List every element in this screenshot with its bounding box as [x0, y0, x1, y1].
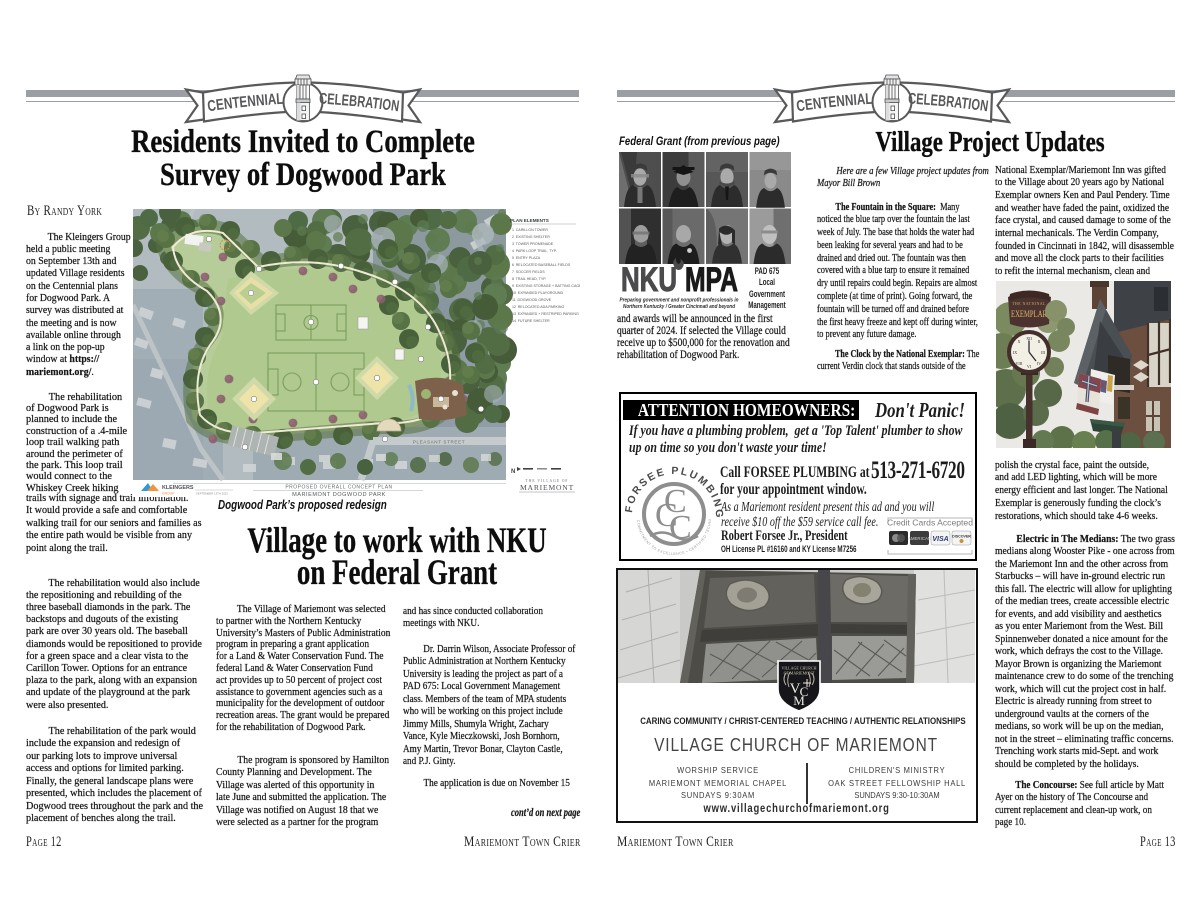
- svg-text:1 CARILLON TOWER: 1 CARILLON TOWER: [512, 228, 548, 232]
- svg-text:VI: VI: [1027, 364, 1032, 369]
- svg-text:IV: IV: [1037, 361, 1041, 366]
- svg-text:PLEASANT STREET: PLEASANT STREET: [413, 440, 465, 445]
- svg-text:13 EXPANDED + RESTRIPED PARKI: 13 EXPANDED + RESTRIPED PARKING LOT: [512, 312, 580, 316]
- svg-text:Northern Kentucky / Greater Ci: Northern Kentucky / Greater Cincinnati a…: [623, 304, 736, 310]
- svg-text:11 DOGWOOD GROVE: 11 DOGWOOD GROVE: [512, 298, 552, 302]
- svg-text:AMERICAN: AMERICAN: [908, 536, 931, 541]
- svg-text:MPA: MPA: [685, 261, 738, 299]
- svg-text:9 EXISTING STORAGE + BATTING: 9 EXISTING STORAGE + BATTING CAGES: [512, 284, 580, 288]
- svg-text:SEPTEMBER 13TH 2023: SEPTEMBER 13TH 2023: [196, 492, 228, 496]
- svg-text:Credit Cards Accepted: Credit Cards Accepted: [887, 518, 973, 528]
- svg-text:7 SOCCER FIELDS: 7 SOCCER FIELDS: [512, 270, 545, 274]
- svg-text:III: III: [1041, 350, 1046, 355]
- svg-text:NKU: NKU: [621, 261, 677, 299]
- svg-text:XII: XII: [1026, 336, 1032, 341]
- svg-text:M: M: [793, 693, 805, 708]
- svg-text:IX: IX: [1013, 350, 1017, 355]
- svg-text:5 ENTRY PLAZA: 5 ENTRY PLAZA: [512, 256, 541, 260]
- svg-text:DISCOVER: DISCOVER: [952, 535, 971, 539]
- svg-text:N: N: [511, 469, 515, 475]
- svg-text:10 EXPANDED PLAYGROUND: 10 EXPANDED PLAYGROUND: [512, 291, 564, 295]
- svg-text:MARIEMONT: MARIEMONT: [520, 483, 574, 492]
- svg-text:8 TRAIL HEAD, TYP.: 8 TRAIL HEAD, TYP.: [512, 277, 546, 281]
- svg-text:2 EXISTING SHELTER: 2 EXISTING SHELTER: [512, 235, 550, 239]
- svg-text:PLAN ELEMENTS: PLAN ELEMENTS: [510, 218, 549, 223]
- svg-text:THE NATIONAL: THE NATIONAL: [1012, 301, 1046, 306]
- svg-text:4 PARK LOOP TRAIL, TYP.: 4 PARK LOOP TRAIL, TYP.: [512, 249, 557, 253]
- svg-text:14 FUTURE SHELTER: 14 FUTURE SHELTER: [512, 319, 550, 323]
- svg-text:GROUP: GROUP: [162, 492, 175, 496]
- svg-text:6 RELOCATED BASEBALL FIELDS: 6 RELOCATED BASEBALL FIELDS: [512, 263, 571, 267]
- svg-text:EXEMPLAR: EXEMPLAR: [1011, 309, 1047, 319]
- svg-text:3 TOWER PROMENADE: 3 TOWER PROMENADE: [512, 242, 554, 246]
- svg-text:MARIEMONT DOGWOOD PARK: MARIEMONT DOGWOOD PARK: [292, 492, 386, 497]
- svg-text:PROPOSED OVERALL CONCEPT PLAN: PROPOSED OVERALL CONCEPT PLAN: [285, 485, 392, 491]
- svg-text:VISA: VISA: [932, 536, 948, 543]
- svg-text:12 RELOCATED ADA PARKING: 12 RELOCATED ADA PARKING: [512, 305, 565, 309]
- svg-text:X: X: [1018, 339, 1021, 344]
- svg-text:VIII: VIII: [1016, 361, 1024, 366]
- svg-text:KLEINGERS: KLEINGERS: [162, 485, 194, 491]
- svg-text:Preparing government and nonpr: Preparing government and nonprofit profe…: [620, 298, 739, 304]
